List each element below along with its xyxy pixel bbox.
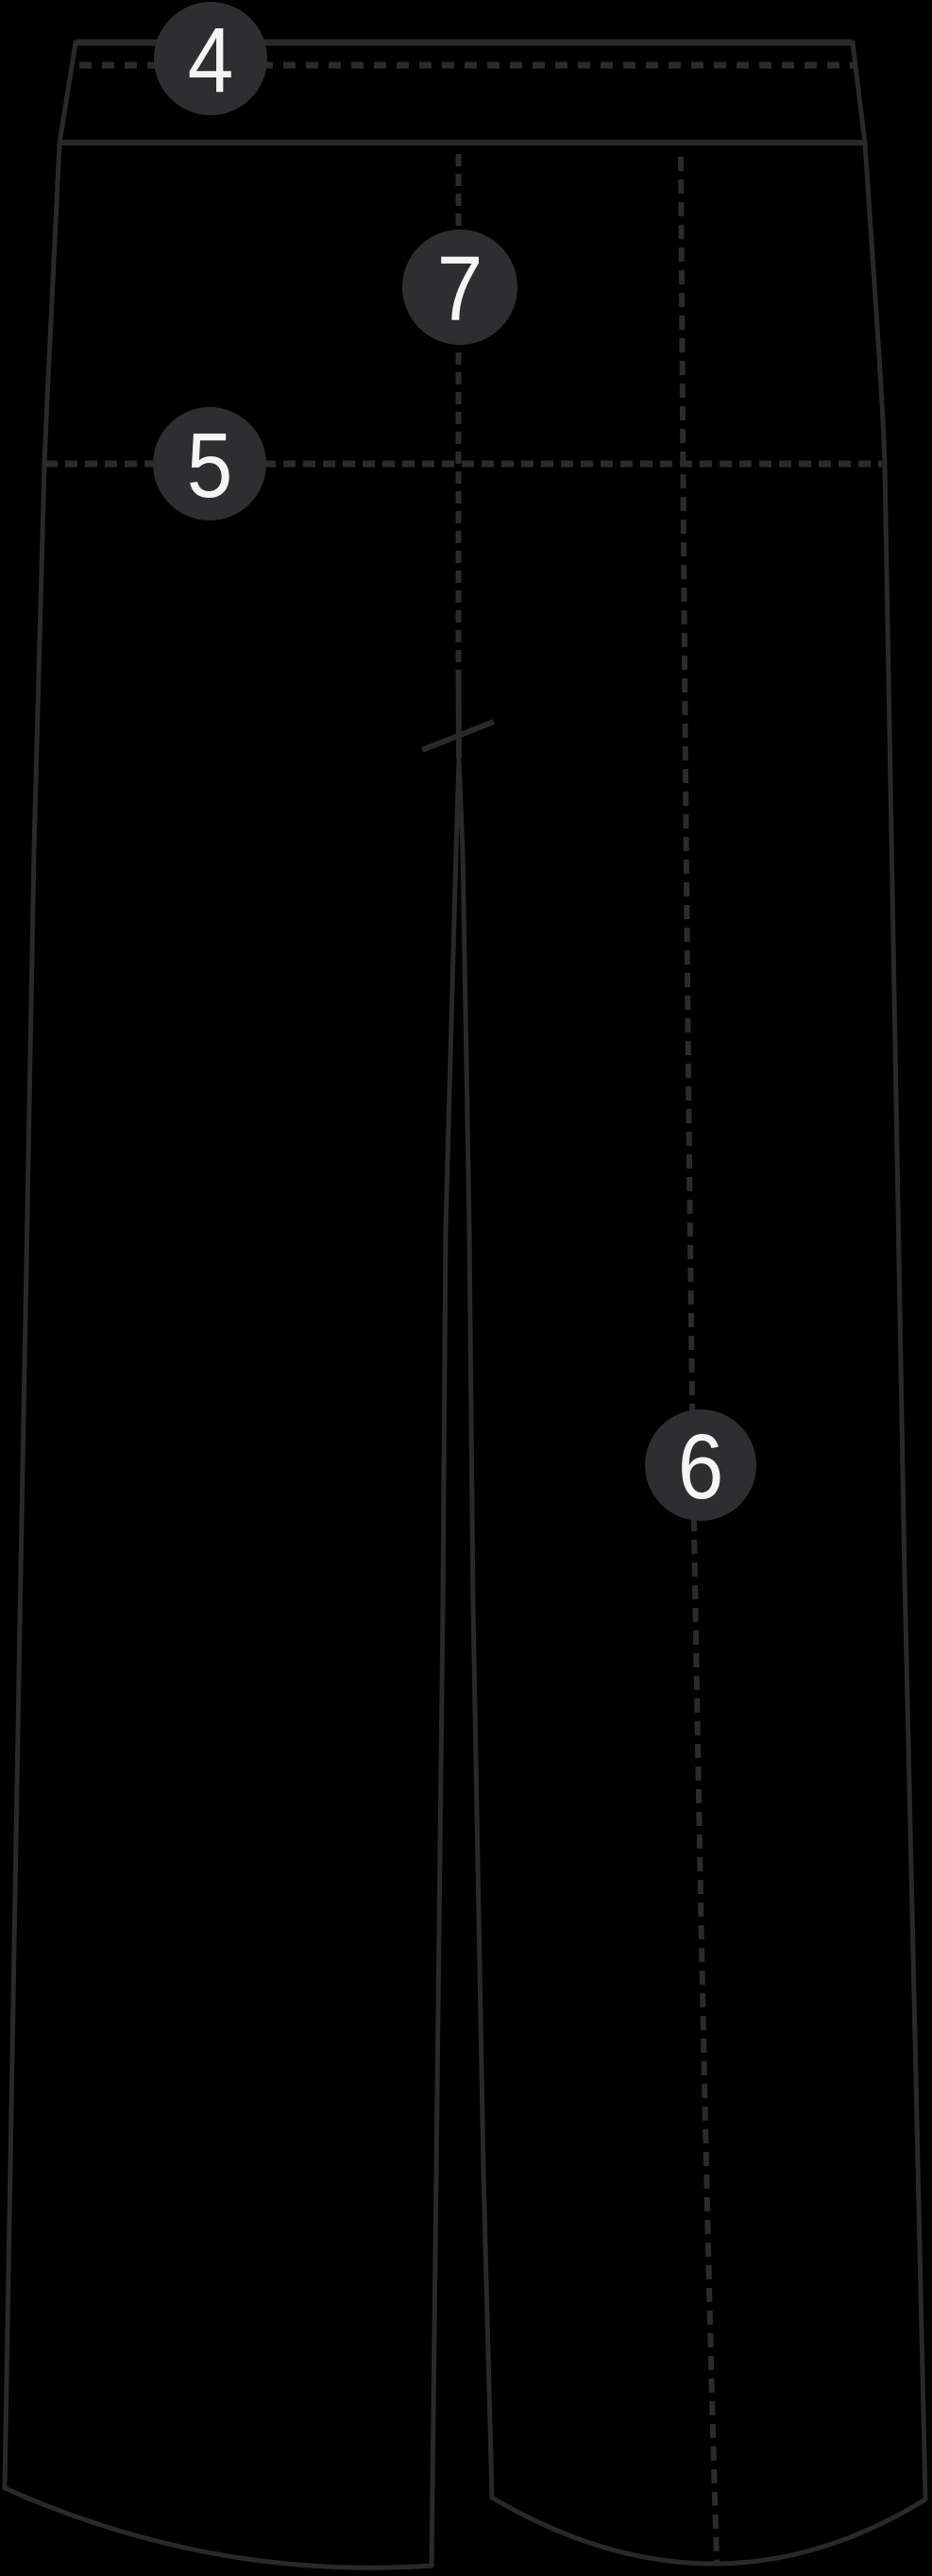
marker-label-4: 4 xyxy=(188,9,234,111)
marker-label-6: 6 xyxy=(678,1415,724,1518)
crotch-seam-line xyxy=(459,671,460,758)
marker-7: 7 xyxy=(402,230,517,345)
pants-measurement-diagram: 4 7 5 6 xyxy=(0,0,932,2576)
marker-5: 5 xyxy=(153,407,266,520)
marker-4: 4 xyxy=(154,2,267,115)
marker-label-7: 7 xyxy=(437,237,483,340)
marker-6: 6 xyxy=(645,1409,756,1521)
diagram-background xyxy=(0,0,932,2576)
marker-label-5: 5 xyxy=(187,414,233,517)
